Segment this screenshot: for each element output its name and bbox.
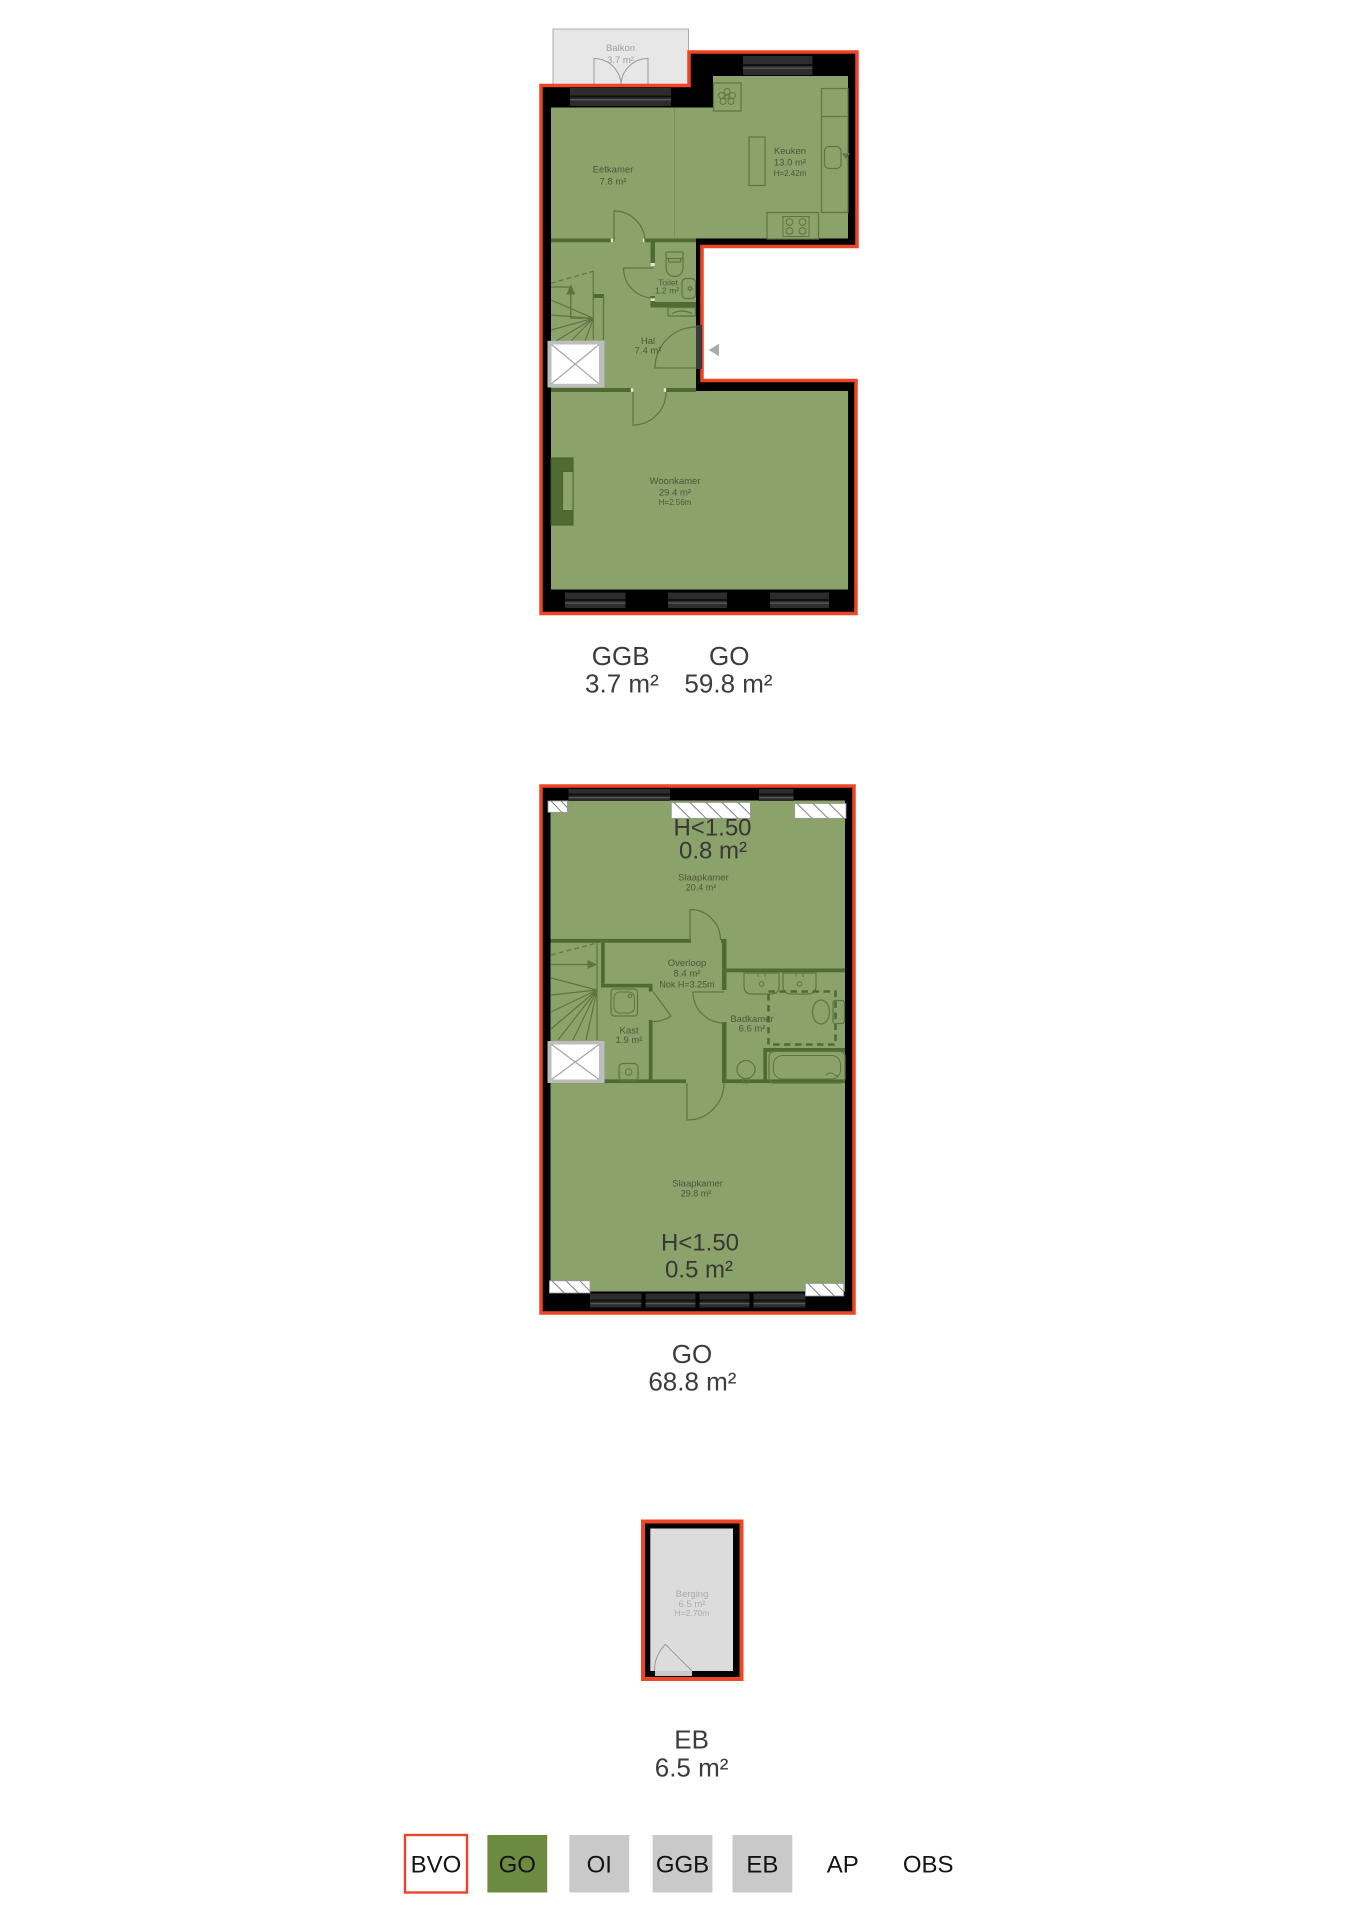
svg-text:6.6 m²: 6.6 m² — [739, 1024, 766, 1035]
svg-text:Balkon: Balkon — [606, 43, 635, 54]
svg-text:GO: GO — [672, 1339, 712, 1369]
svg-text:Woonkamer: Woonkamer — [649, 476, 700, 487]
svg-text:GO: GO — [709, 641, 749, 671]
svg-text:1.2 m²: 1.2 m² — [655, 286, 679, 296]
svg-text:BVO: BVO — [411, 1852, 462, 1879]
svg-text:1.9 m²: 1.9 m² — [616, 1035, 643, 1046]
svg-text:8.4 m²: 8.4 m² — [674, 969, 701, 980]
svg-text:29.8 m²: 29.8 m² — [681, 1189, 712, 1199]
svg-text:GGB: GGB — [656, 1852, 709, 1879]
svg-text:Eetkamer: Eetkamer — [593, 165, 634, 176]
svg-text:0.8 m²: 0.8 m² — [679, 838, 747, 865]
svg-text:GO: GO — [499, 1852, 536, 1879]
svg-text:OBS: OBS — [903, 1852, 954, 1879]
svg-text:Keuken: Keuken — [774, 146, 806, 157]
svg-text:20.4 m²: 20.4 m² — [686, 883, 717, 893]
svg-text:6.5 m²: 6.5 m² — [655, 1753, 729, 1783]
svg-text:GGB: GGB — [592, 641, 650, 671]
svg-text:7.4 m²: 7.4 m² — [635, 346, 662, 357]
svg-text:EB: EB — [746, 1852, 778, 1879]
svg-text:H<1.50: H<1.50 — [661, 1230, 739, 1257]
svg-text:0.5 m²: 0.5 m² — [665, 1257, 733, 1284]
svg-text:Nok H=3.25m: Nok H=3.25m — [659, 980, 714, 990]
svg-text:13.0 m²: 13.0 m² — [774, 158, 806, 169]
svg-text:29.4 m²: 29.4 m² — [659, 488, 691, 499]
svg-text:68.8 m²: 68.8 m² — [648, 1367, 736, 1397]
svg-text:59.8 m²: 59.8 m² — [684, 669, 772, 699]
svg-text:AP: AP — [827, 1852, 859, 1879]
svg-text:Overloop: Overloop — [668, 958, 707, 969]
svg-text:H=2.42m: H=2.42m — [774, 169, 807, 178]
svg-text:EB: EB — [674, 1725, 709, 1755]
svg-text:7.8 m²: 7.8 m² — [600, 177, 627, 188]
svg-text:H=2.70m: H=2.70m — [675, 1608, 710, 1618]
svg-text:H=2.56m: H=2.56m — [659, 498, 692, 507]
svg-text:OI: OI — [587, 1852, 612, 1879]
svg-text:3.7 m²: 3.7 m² — [585, 669, 659, 699]
